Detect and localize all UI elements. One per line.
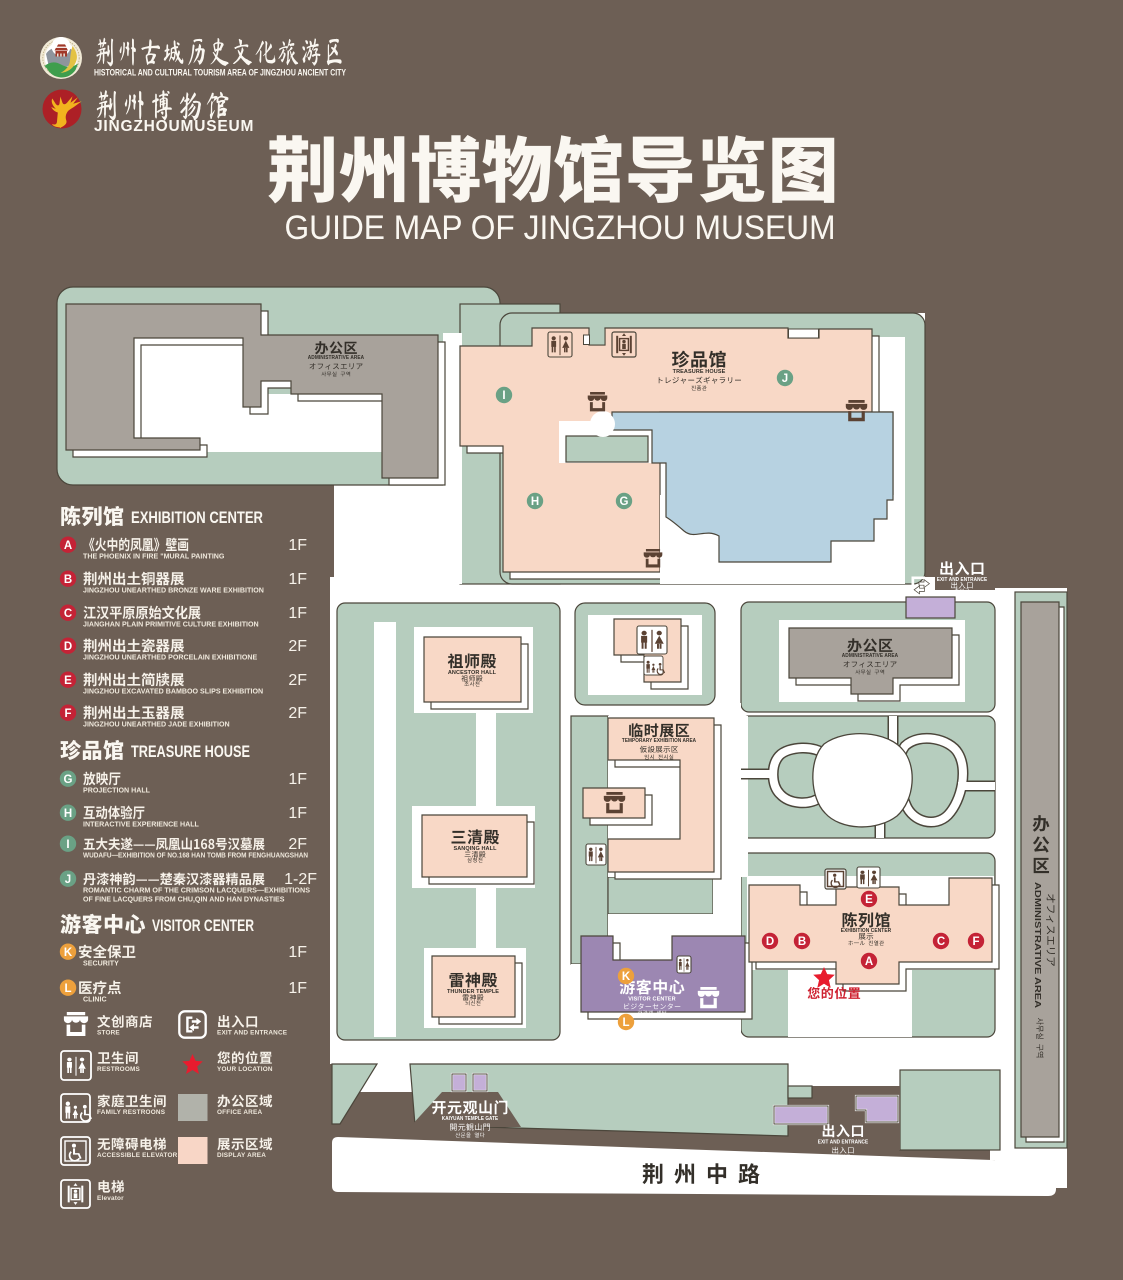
svg-text:ADMINISTRATIVE AREA: ADMINISTRATIVE AREA [1033, 882, 1042, 1008]
svg-text:L: L [64, 983, 71, 995]
svg-text:VISITOR CENTER: VISITOR CENTER [152, 917, 254, 935]
svg-text:JIANGHAN PLAIN PRIMITIVE CULTU: JIANGHAN PLAIN PRIMITIVE CULTURE EXHIBIT… [83, 620, 259, 628]
svg-text:YOUR LOCATION: YOUR LOCATION [217, 1066, 273, 1073]
svg-text:PROJECTION HALL: PROJECTION HALL [83, 786, 151, 794]
svg-text:VISITOR CENTER: VISITOR CENTER [628, 997, 675, 1003]
svg-text:JINGZHOUMUSEUM: JINGZHOUMUSEUM [94, 118, 254, 135]
svg-text:OFFICE AREA: OFFICE AREA [217, 1109, 262, 1116]
svg-text:A: A [865, 956, 873, 968]
svg-text:H: H [531, 496, 539, 508]
svg-text:J: J [782, 373, 788, 385]
svg-text:1-2F: 1-2F [284, 871, 317, 888]
svg-text:EXIT AND ENTRANCE: EXIT AND ENTRANCE [217, 1030, 288, 1037]
svg-text:D: D [766, 936, 774, 948]
svg-text:H: H [64, 808, 72, 820]
svg-text:SECURITY: SECURITY [83, 959, 119, 967]
svg-text:FAMILY RESTROONS: FAMILY RESTROONS [97, 1109, 166, 1116]
svg-text:JINGZHOU EXCAVATED BAMBOO SLIP: JINGZHOU EXCAVATED BAMBOO SLIPS EXHIBITI… [83, 687, 263, 695]
svg-text:K: K [64, 947, 73, 959]
svg-text:EXHIBITION CENTER: EXHIBITION CENTER [131, 509, 263, 527]
svg-text:THUNDER TEMPLE: THUNDER TEMPLE [447, 989, 499, 995]
svg-text:B: B [64, 574, 72, 586]
svg-text:ANCESTOR HALL: ANCESTOR HALL [448, 670, 497, 676]
svg-text:E: E [64, 675, 72, 687]
svg-text:KAIYUAN TEMPLE GATE: KAIYUAN TEMPLE GATE [442, 1116, 499, 1122]
svg-text:DISPLAY AREA: DISPLAY AREA [217, 1152, 266, 1159]
svg-text:ROMANTIC CHARM OF THE CRIMSON: ROMANTIC CHARM OF THE CRIMSON LACQUERS—E… [83, 886, 310, 894]
svg-text:ADMINISTRATIVE AREA: ADMINISTRATIVE AREA [308, 355, 364, 361]
svg-text:CLINIC: CLINIC [83, 995, 107, 1003]
svg-text:EXHIBITION CENTER: EXHIBITION CENTER [841, 928, 891, 934]
svg-text:JINGZHOU UNEARTHED BRONZE WARE: JINGZHOU UNEARTHED BRONZE WARE EXHIBITIO… [83, 586, 264, 594]
svg-text:B: B [798, 936, 806, 948]
svg-text:C: C [64, 608, 72, 620]
svg-text:1F: 1F [288, 944, 307, 961]
svg-text:2F: 2F [288, 638, 307, 655]
svg-text:D: D [64, 641, 72, 653]
svg-text:F: F [64, 708, 71, 720]
svg-text:SANQING HALL: SANQING HALL [453, 846, 497, 852]
svg-text:A: A [64, 540, 72, 552]
svg-text:2F: 2F [288, 705, 307, 722]
svg-text:J: J [65, 874, 71, 886]
svg-text:1F: 1F [288, 980, 307, 997]
svg-text:HISTORICAL AND CULTURAL TOURIS: HISTORICAL AND CULTURAL TOURISM AREA OF … [94, 68, 346, 79]
svg-text:WUDAFU—EXHIBITION OF NO.168 HA: WUDAFU—EXHIBITION OF NO.168 HAN TOMB FRO… [83, 851, 308, 859]
svg-text:THE PHOENIX IN FIRE "MURAL PAI: THE PHOENIX IN FIRE "MURAL PAINTING [83, 552, 225, 560]
svg-text:TREASURE HOUSE: TREASURE HOUSE [131, 743, 250, 761]
svg-text:1F: 1F [288, 537, 307, 554]
svg-text:EXIT AND ENTRANCE: EXIT AND ENTRANCE [937, 577, 988, 583]
svg-text:INTERACTIVE EXPERIENCE HALL: INTERACTIVE EXPERIENCE HALL [83, 820, 200, 828]
svg-text:C: C [937, 936, 945, 948]
svg-text:STORE: STORE [97, 1030, 120, 1037]
svg-text:E: E [865, 894, 873, 906]
svg-text:1F: 1F [288, 571, 307, 588]
svg-text:F: F [972, 936, 979, 948]
svg-text:Elevator: Elevator [97, 1195, 124, 1202]
svg-text:GUIDE MAP OF JINGZHOU MUSEUM: GUIDE MAP OF JINGZHOU MUSEUM [285, 209, 836, 247]
svg-text:1F: 1F [288, 805, 307, 822]
svg-text:RESTROOMS: RESTROOMS [97, 1066, 141, 1073]
svg-text:JINGZHOU UNEARTHED PORCELAIN E: JINGZHOU UNEARTHED PORCELAIN EXHIBITIONE [83, 653, 257, 661]
svg-text:2F: 2F [288, 672, 307, 689]
svg-text:ADMINISTRATIVE AREA: ADMINISTRATIVE AREA [842, 653, 898, 659]
svg-text:G: G [64, 774, 73, 786]
svg-text:G: G [620, 496, 629, 508]
svg-text:JINGZHOU UNEARTHED JADE EXHIBI: JINGZHOU UNEARTHED JADE EXHIBITION [83, 720, 230, 728]
svg-text:TEMPORARY EXHIBITION AREA: TEMPORARY EXHIBITION AREA [622, 738, 696, 744]
svg-text:K: K [622, 971, 631, 983]
svg-text:L: L [622, 1017, 629, 1029]
svg-text:TREASURE HOUSE: TREASURE HOUSE [673, 369, 726, 375]
svg-text:EXIT AND ENTRANCE: EXIT AND ENTRANCE [818, 1140, 869, 1146]
svg-text:2F: 2F [288, 836, 307, 853]
svg-text:I: I [66, 839, 69, 851]
svg-text:I: I [502, 390, 505, 402]
svg-text:1F: 1F [288, 605, 307, 622]
svg-text:1F: 1F [288, 771, 307, 788]
svg-text:OF FINE LACQUERS FROM CHU,QIN: OF FINE LACQUERS FROM CHU,QIN AND HAN DY… [83, 896, 285, 904]
svg-text:ACCESSIBLE ELEVATOR: ACCESSIBLE ELEVATOR [97, 1152, 178, 1159]
